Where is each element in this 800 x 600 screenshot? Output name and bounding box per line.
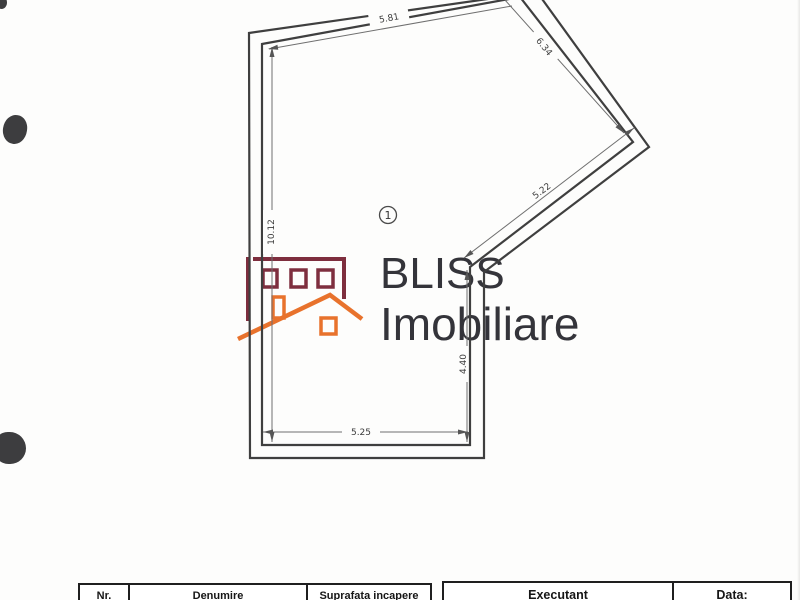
dimension-label-bottom: 5.25 xyxy=(351,428,371,438)
room-number-marker: 1 xyxy=(380,207,397,224)
logo-door xyxy=(273,297,284,318)
dimension-label-top-left: 5.81 xyxy=(378,12,399,25)
room-number-label: 1 xyxy=(385,209,392,222)
dimension-line-top-right xyxy=(505,0,624,133)
room-table: Nr. Denumire Suprafata incapere xyxy=(78,583,432,600)
floor-plan-drawing: 5.81 6.34 5.22 10.12 4.40 5.25 xyxy=(0,0,800,600)
dimension-line-diagonal xyxy=(464,128,634,258)
dimension-label-left: 10.12 xyxy=(267,219,277,245)
signature-table: Executant Data: xyxy=(442,581,792,600)
dimension-arrowheads xyxy=(263,45,636,442)
dimension-label-right: 4.40 xyxy=(459,354,469,374)
scanned-floor-plan-page: BLISS Imobiliare xyxy=(0,0,800,600)
table-header-executant: Executant xyxy=(444,583,674,600)
logo-window-3 xyxy=(318,270,333,287)
logo-window-1 xyxy=(263,270,277,287)
logo-window-2 xyxy=(291,270,306,287)
wall-outline-outer xyxy=(249,0,649,458)
table-header-nr: Nr. xyxy=(80,585,130,600)
logo-roof-line xyxy=(238,295,362,339)
table-header-denumire: Denumire xyxy=(130,585,308,600)
logo-roof-icon xyxy=(238,295,362,339)
wall-outline-inner xyxy=(262,0,633,445)
logo-roof-window xyxy=(321,318,336,334)
table-header-suprafata: Suprafata incapere xyxy=(308,585,430,600)
table-header-data: Data: xyxy=(674,583,790,600)
